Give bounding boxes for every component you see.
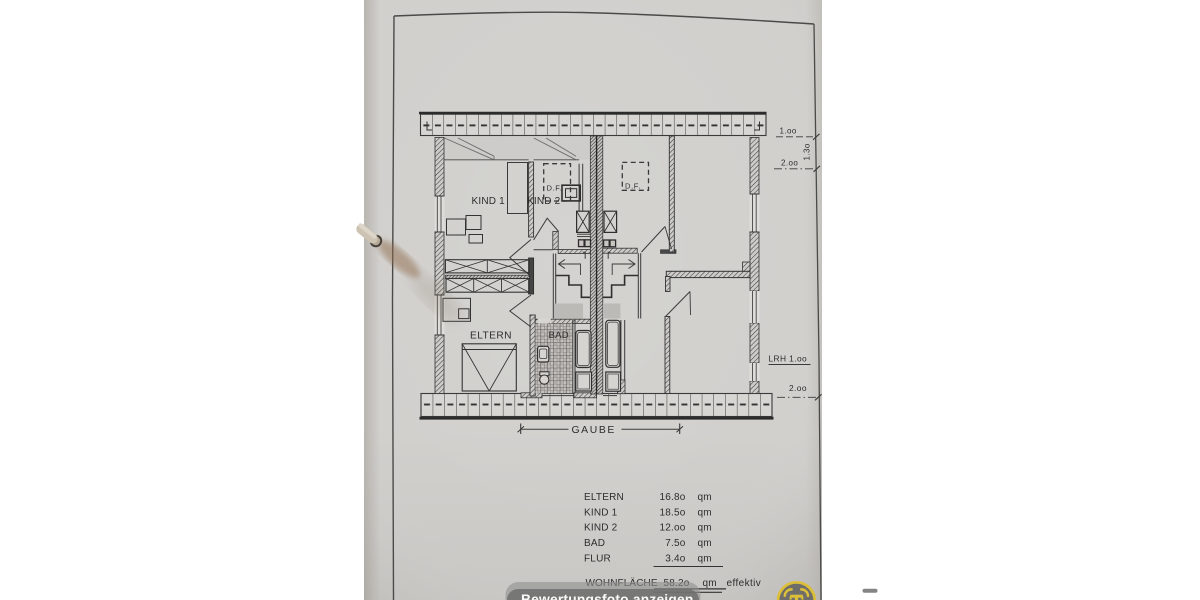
svg-text:KIND 1: KIND 1 <box>472 196 506 207</box>
svg-text:FLUR: FLUR <box>584 553 611 564</box>
svg-text:Bewertungsfoto anzeigen: Bewertungsfoto anzeigen <box>521 592 693 600</box>
svg-text:GAUBE: GAUBE <box>572 425 616 436</box>
svg-text:KIND 2: KIND 2 <box>527 196 561 207</box>
svg-text:12.oo: 12.oo <box>659 523 685 534</box>
svg-text:effektiv: effektiv <box>727 578 762 589</box>
svg-text:KIND 2: KIND 2 <box>584 523 618 534</box>
svg-text:18.5o: 18.5o <box>659 507 685 518</box>
svg-text:LRH 1.oo: LRH 1.oo <box>769 354 808 364</box>
svg-text:16.8o: 16.8o <box>659 492 685 503</box>
svg-text:BAD: BAD <box>584 538 605 549</box>
svg-text:1.oo: 1.oo <box>780 127 797 136</box>
svg-text:2.oo: 2.oo <box>781 159 798 168</box>
svg-text:1.3o: 1.3o <box>803 143 812 160</box>
svg-text:2.oo: 2.oo <box>789 383 807 393</box>
svg-text:3.4o: 3.4o <box>665 553 686 564</box>
svg-text:qm: qm <box>698 523 712 534</box>
svg-text:ELTERN: ELTERN <box>470 330 512 341</box>
svg-text:ELTERN: ELTERN <box>584 492 624 503</box>
svg-text:qm: qm <box>703 578 717 589</box>
svg-text:BAD: BAD <box>549 330 569 341</box>
svg-text:KIND 1: KIND 1 <box>584 507 618 518</box>
svg-text:qm: qm <box>698 538 712 549</box>
svg-text:D.F.: D.F. <box>625 182 641 191</box>
svg-text:qm: qm <box>698 553 712 564</box>
svg-text:D.F.: D.F. <box>547 184 563 193</box>
svg-text:qm: qm <box>698 492 712 503</box>
svg-text:7.5o: 7.5o <box>665 538 686 549</box>
svg-text:qm: qm <box>698 507 712 518</box>
